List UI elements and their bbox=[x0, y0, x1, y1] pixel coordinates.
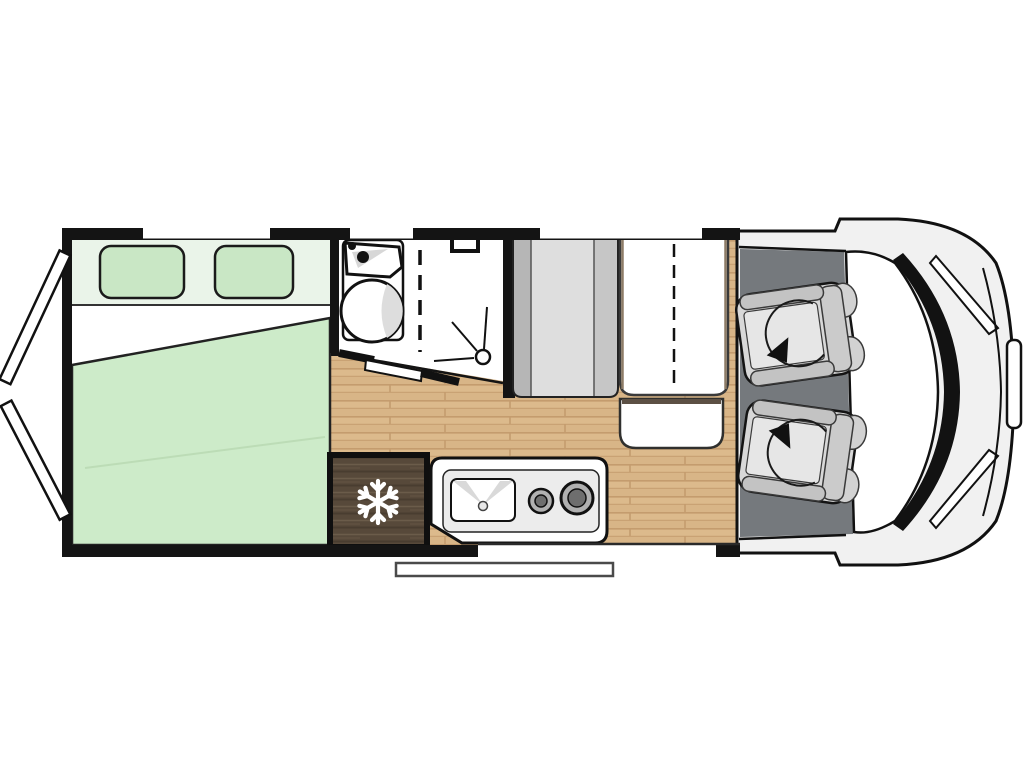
dinette-stool bbox=[620, 399, 723, 448]
rear-doors bbox=[0, 250, 70, 519]
window-bed bbox=[143, 228, 270, 239]
faucet-dot-large bbox=[357, 251, 369, 263]
bed-pillow-right bbox=[215, 246, 293, 298]
bathroom-wall-left bbox=[330, 237, 339, 356]
cab-seat-bottom bbox=[736, 399, 869, 507]
window-dinette bbox=[540, 228, 702, 239]
cab-seat-top bbox=[734, 280, 867, 388]
window-bathroom bbox=[350, 228, 413, 239]
wall-bottom-cab bbox=[716, 545, 740, 557]
floorplan-stage bbox=[0, 0, 1024, 768]
front-bumper bbox=[1007, 340, 1021, 428]
rear-door-top bbox=[0, 250, 70, 384]
rear-door-bottom bbox=[1, 401, 71, 520]
motorhome-floorplan bbox=[0, 0, 1024, 768]
entry-step bbox=[396, 563, 613, 576]
fridge bbox=[330, 455, 427, 547]
rear-bed bbox=[72, 240, 330, 545]
dinette-table bbox=[620, 237, 728, 395]
van-front bbox=[734, 219, 1021, 565]
bed-pillow-left bbox=[100, 246, 184, 298]
faucet-dot-small bbox=[348, 242, 356, 250]
kitchen-unit bbox=[431, 458, 607, 543]
shower-drain-icon bbox=[476, 350, 490, 364]
dinette-bench bbox=[513, 239, 618, 397]
wall-bottom bbox=[62, 545, 478, 557]
